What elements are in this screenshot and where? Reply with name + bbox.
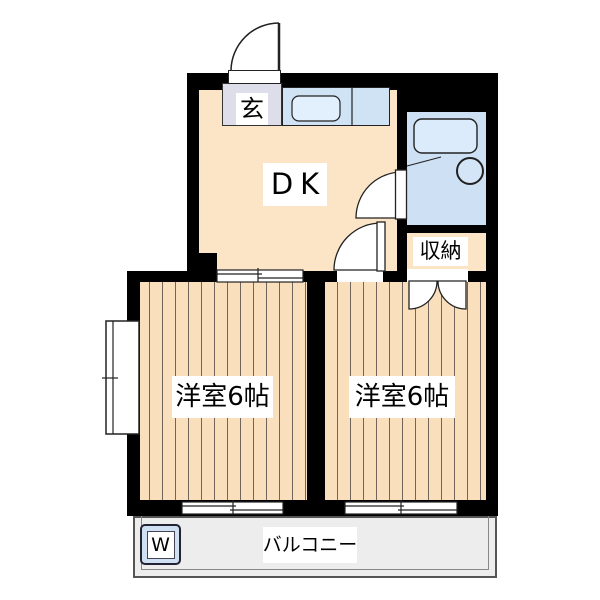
wall-middle	[307, 271, 325, 516]
bathroom-floor	[407, 112, 486, 225]
room-right-label: 洋室6帖	[349, 376, 455, 418]
wall-top-right-block	[397, 73, 498, 112]
kitchen-counter	[282, 87, 390, 126]
room-left-label-text: 洋室6帖	[175, 384, 270, 410]
entrance-door-icon	[231, 23, 279, 71]
genkan-label: 玄	[236, 93, 268, 125]
room-left-label: 洋室6帖	[172, 376, 273, 418]
washing-machine-label-text: W	[151, 534, 170, 556]
entrance-threshold	[228, 70, 281, 84]
washing-machine: W	[140, 524, 181, 565]
wall-bathroom-bottom	[397, 225, 486, 233]
wall-left-lower	[127, 272, 140, 516]
wall-bathroom-left	[397, 112, 407, 271]
storage-label: 収納	[413, 237, 468, 266]
wall-step	[187, 253, 217, 271]
dk-label-text: DK	[271, 170, 326, 199]
washing-machine-label: W	[147, 531, 175, 559]
dk-label: DK	[263, 163, 327, 206]
wall-left-upper	[187, 90, 199, 271]
room-right-label-text: 洋室6帖	[355, 384, 450, 410]
floorplan: 玄 DK 収納 洋室6帖 洋室6帖 バルコニー W	[0, 0, 600, 600]
storage-label-text: 収納	[420, 241, 462, 262]
genkan-label-text: 玄	[240, 97, 264, 121]
wall-bottom	[127, 500, 498, 516]
wall-right	[486, 73, 498, 516]
balcony-label-text: バルコニー	[263, 536, 358, 555]
balcony-label: バルコニー	[263, 527, 357, 563]
